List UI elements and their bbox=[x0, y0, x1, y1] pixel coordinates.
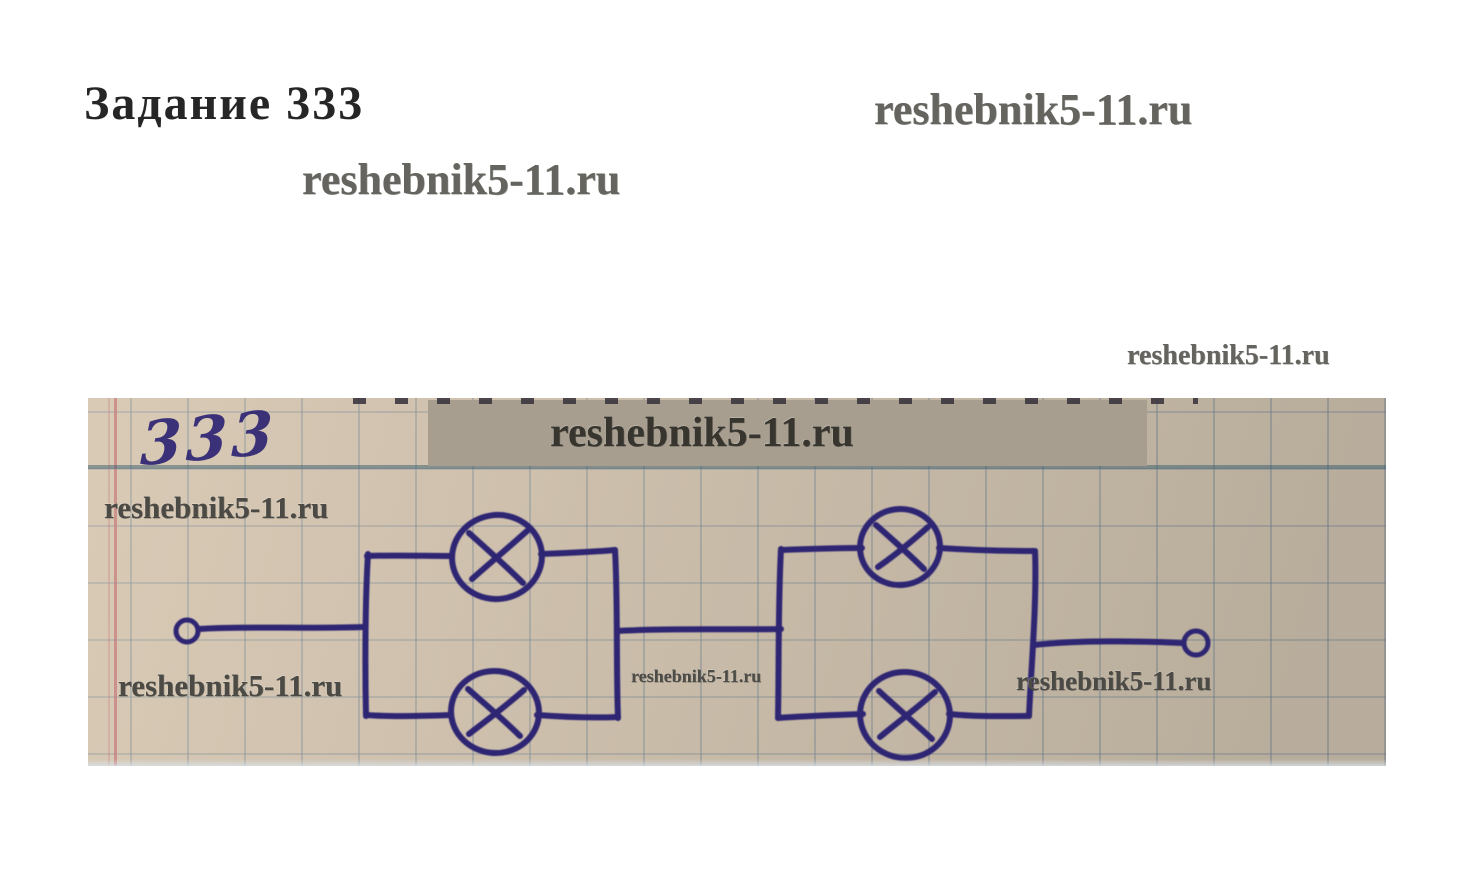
wire bbox=[1034, 641, 1182, 645]
wire bbox=[778, 549, 781, 718]
wire bbox=[939, 548, 1035, 551]
wire bbox=[781, 548, 862, 550]
wire bbox=[199, 627, 365, 629]
page-title: Задание 333 bbox=[84, 76, 364, 131]
wire bbox=[615, 550, 618, 718]
watermark-photo-middle: reshebnik5-11.ru bbox=[631, 666, 761, 687]
watermark-photo-lower-left: reshebnik5-11.ru bbox=[118, 668, 342, 704]
wire bbox=[949, 714, 1029, 716]
watermark-mid-right: reshebnik5-11.ru bbox=[1127, 340, 1330, 372]
watermark-top-right: reshebnik5-11.ru bbox=[874, 84, 1192, 135]
wire bbox=[537, 715, 618, 717]
watermark-photo-upper-left: reshebnik5-11.ru bbox=[104, 490, 328, 526]
watermark-photo-right: reshebnik5-11.ru bbox=[1016, 666, 1211, 697]
watermark-under-title: reshebnik5-11.ru bbox=[302, 154, 620, 205]
terminal-icon bbox=[1184, 631, 1208, 655]
lamp-icon bbox=[856, 505, 944, 589]
notebook-photo: reshebnik5-11.ru 333 bbox=[88, 398, 1386, 766]
lamp-icon bbox=[447, 509, 548, 605]
solution-page: Задание 333 reshebnik5-11.ru reshebnik5-… bbox=[0, 0, 1466, 884]
wire bbox=[617, 629, 781, 631]
wire bbox=[778, 714, 863, 718]
wire bbox=[541, 550, 615, 554]
lamp-icon bbox=[854, 666, 955, 764]
lamp-icon bbox=[447, 667, 543, 758]
wire bbox=[366, 715, 451, 716]
terminal-icon bbox=[176, 620, 198, 642]
circuit-diagram bbox=[88, 398, 1386, 766]
wire bbox=[365, 554, 368, 716]
